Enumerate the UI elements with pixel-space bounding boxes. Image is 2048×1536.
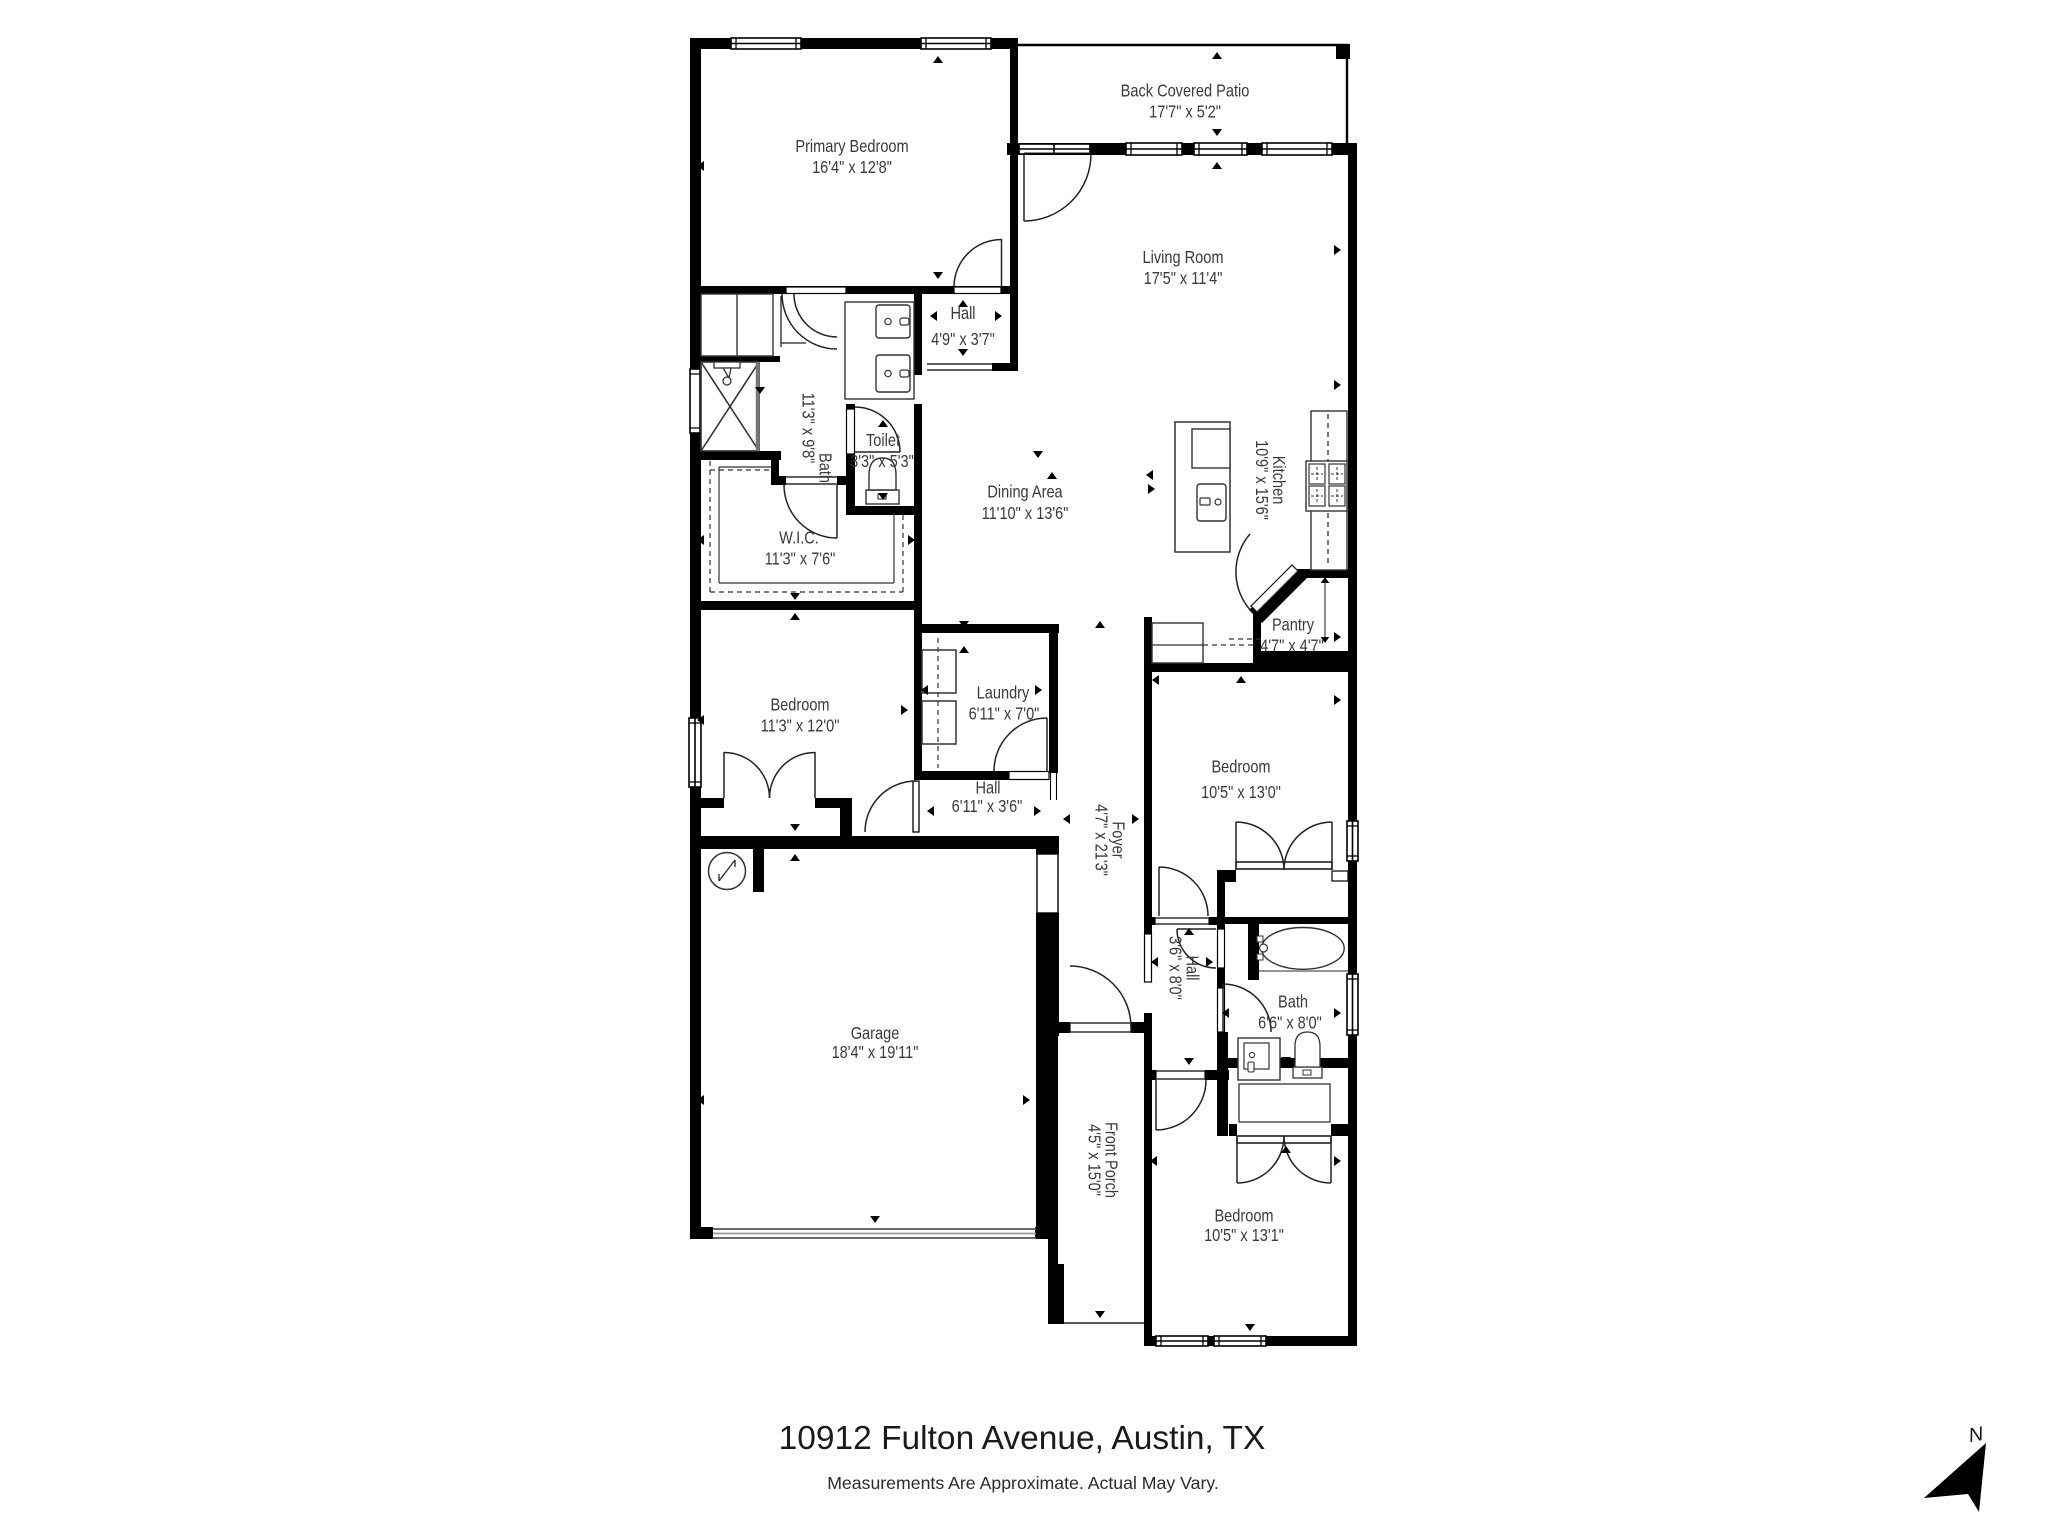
svg-text:W.I.C.: W.I.C. — [779, 528, 819, 548]
svg-text:Garage: Garage — [851, 1024, 900, 1044]
svg-text:6'11" x 7'0": 6'11" x 7'0" — [969, 704, 1040, 724]
svg-text:4'7" x 21'3": 4'7" x 21'3" — [1091, 804, 1111, 876]
svg-text:16'4" x 12'8": 16'4" x 12'8" — [812, 158, 892, 178]
svg-text:11'10" x 13'6": 11'10" x 13'6" — [982, 504, 1069, 524]
svg-text:Hall: Hall — [975, 778, 1000, 798]
svg-text:10'5" x 13'1": 10'5" x 13'1" — [1204, 1226, 1284, 1246]
svg-text:Measurements Are Approximate.: Measurements Are Approximate. Actual May… — [827, 1473, 1219, 1493]
svg-text:18'4" x 19'11": 18'4" x 19'11" — [832, 1043, 919, 1063]
svg-text:11'3" x 7'6": 11'3" x 7'6" — [765, 549, 836, 569]
svg-text:4'5" x 15'0": 4'5" x 15'0" — [1084, 1124, 1104, 1196]
svg-text:Pantry: Pantry — [1272, 615, 1315, 635]
svg-text:4'9" x 3'7": 4'9" x 3'7" — [931, 330, 995, 350]
svg-text:11'3" x 9'8": 11'3" x 9'8" — [798, 393, 818, 464]
svg-text:4'7" x 4'7": 4'7" x 4'7" — [1260, 636, 1324, 656]
svg-text:11'3" x 12'0": 11'3" x 12'0" — [761, 716, 840, 736]
svg-text:Primary Bedroom: Primary Bedroom — [795, 137, 908, 157]
svg-text:Living Room: Living Room — [1143, 248, 1224, 268]
svg-text:3'3" x 5'3": 3'3" x 5'3" — [850, 452, 914, 472]
svg-text:10'9" x 15'6": 10'9" x 15'6" — [1252, 440, 1272, 520]
svg-text:Bedroom: Bedroom — [770, 695, 829, 715]
svg-text:Bedroom: Bedroom — [1214, 1206, 1273, 1226]
svg-text:Back Covered Patio: Back Covered Patio — [1121, 81, 1250, 101]
svg-text:Toilet: Toilet — [866, 431, 900, 451]
svg-text:17'7" x 5'2": 17'7" x 5'2" — [1149, 102, 1221, 122]
svg-text:6'11" x 3'6": 6'11" x 3'6" — [952, 797, 1023, 817]
svg-text:Laundry: Laundry — [977, 683, 1030, 703]
svg-text:Bedroom: Bedroom — [1211, 757, 1270, 777]
svg-text:17'5" x 11'4": 17'5" x 11'4" — [1144, 269, 1223, 289]
svg-text:Dining Area: Dining Area — [987, 482, 1063, 502]
svg-text:10'5" x 13'0": 10'5" x 13'0" — [1201, 783, 1281, 803]
svg-text:Bath: Bath — [1278, 992, 1308, 1012]
svg-text:10912 Fulton Avenue, Austin, T: 10912 Fulton Avenue, Austin, TX — [779, 1420, 1266, 1457]
svg-text:Hall: Hall — [950, 304, 975, 324]
svg-text:6'6" x 8'0": 6'6" x 8'0" — [1258, 1013, 1322, 1033]
svg-text:3'6" x 8'0": 3'6" x 8'0" — [1165, 936, 1185, 1000]
